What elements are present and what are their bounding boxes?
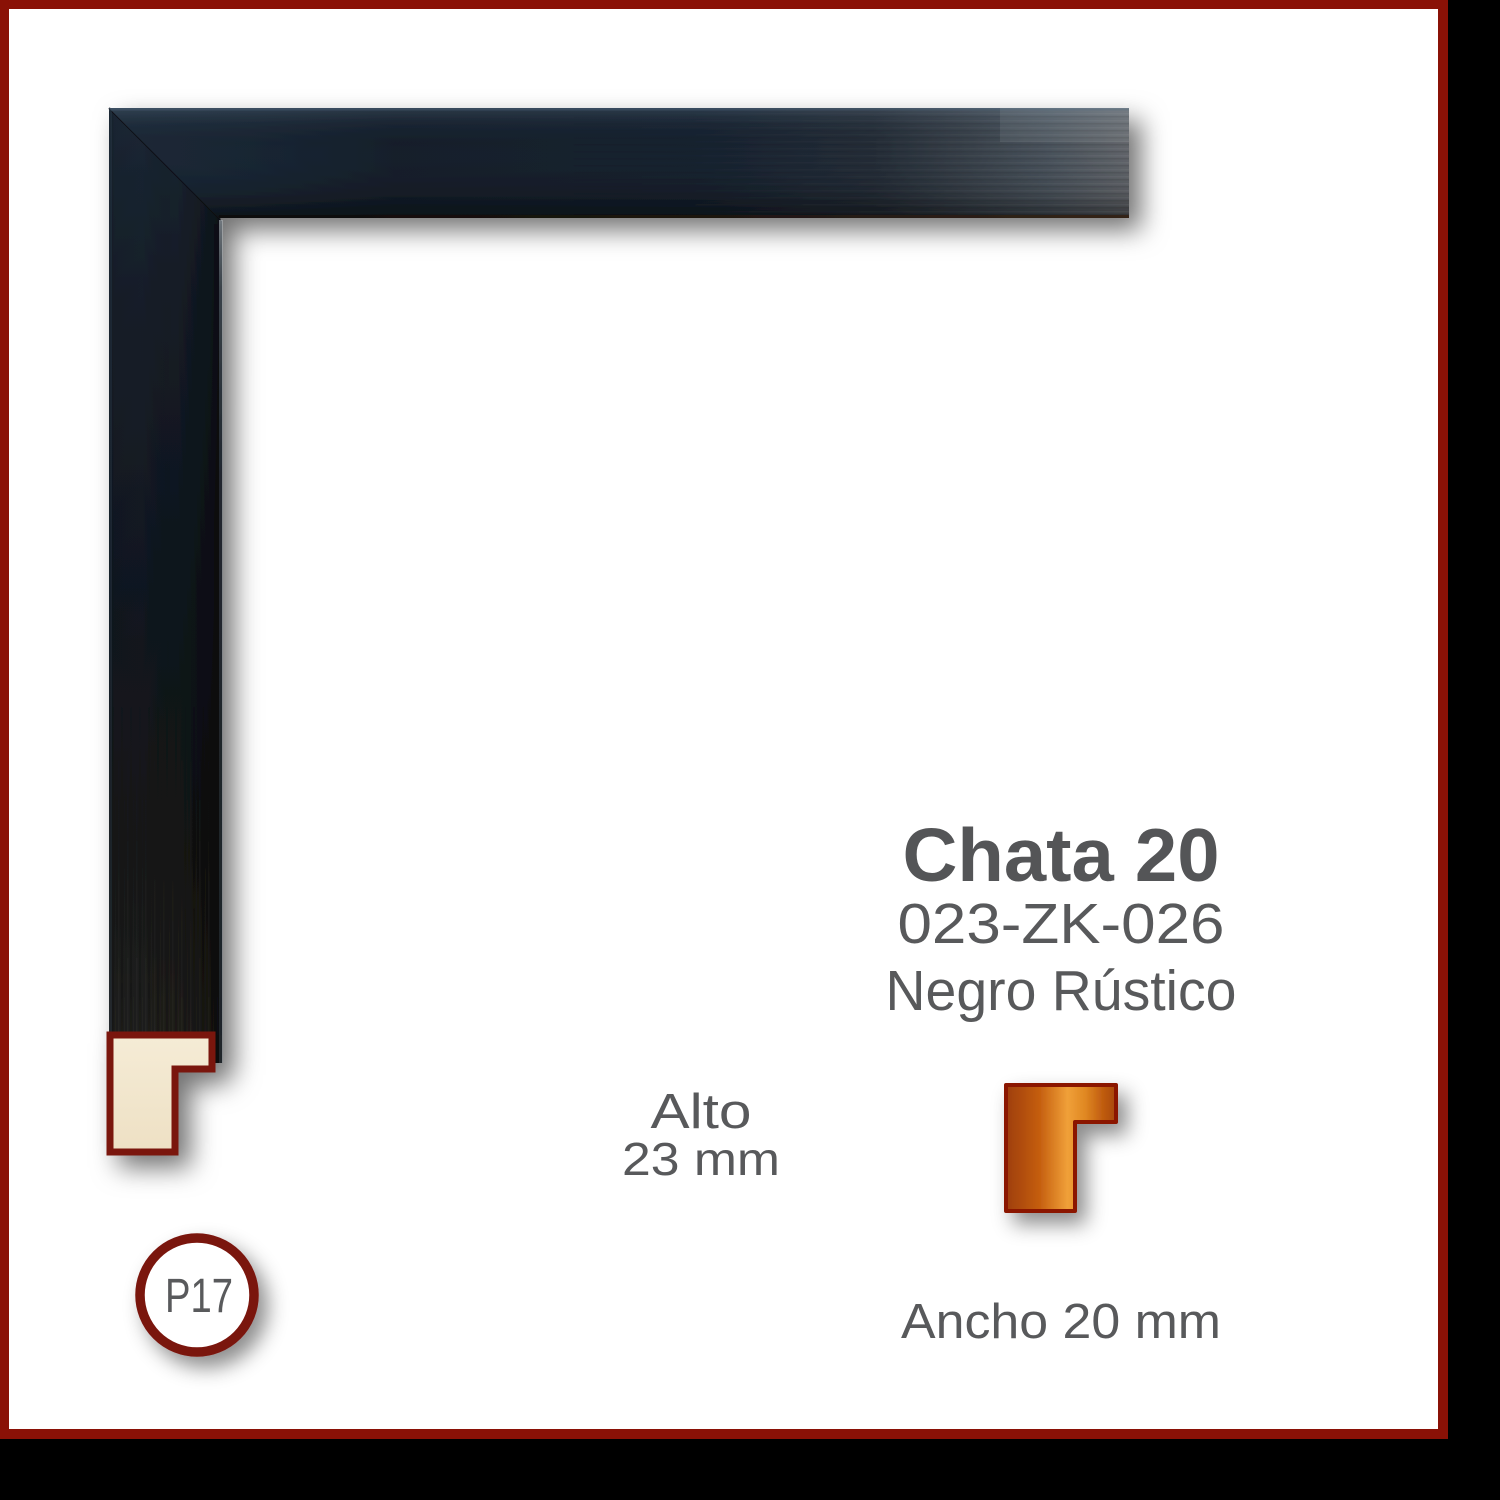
svg-text:Negro Rústico: Negro Rústico bbox=[886, 959, 1237, 1023]
svg-text:023-ZK-026: 023-ZK-026 bbox=[898, 892, 1225, 956]
svg-text:Alto: Alto bbox=[651, 1085, 752, 1139]
svg-text:23 mm: 23 mm bbox=[622, 1133, 780, 1185]
svg-text:P17: P17 bbox=[165, 1270, 233, 1323]
svg-text:Ancho 20 mm: Ancho 20 mm bbox=[901, 1295, 1221, 1349]
svg-text:Chata 20: Chata 20 bbox=[903, 813, 1220, 897]
